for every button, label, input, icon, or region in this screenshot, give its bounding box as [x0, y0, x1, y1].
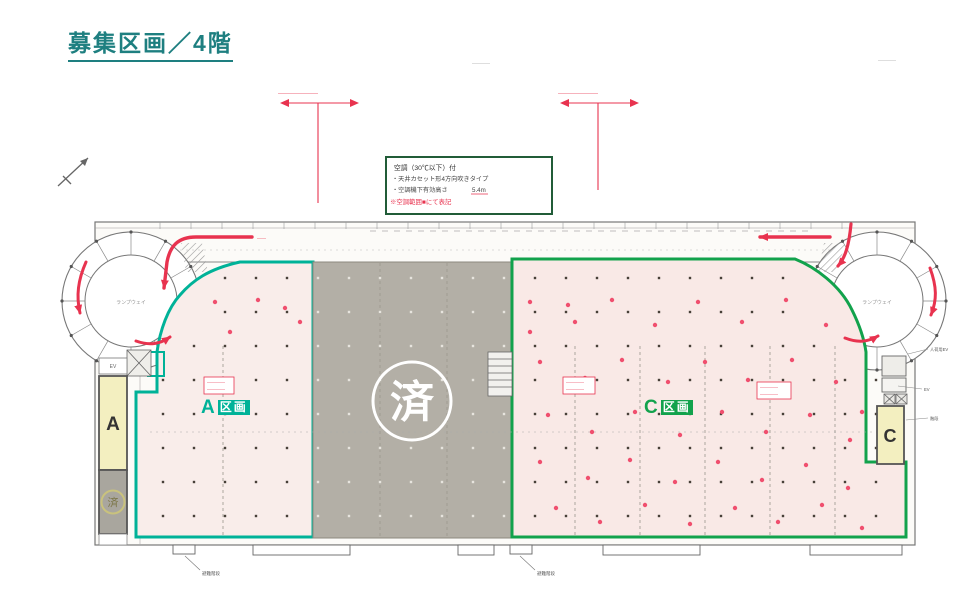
- column-dot: [410, 277, 412, 279]
- column-dot: [348, 311, 350, 313]
- column-dot: [596, 447, 598, 449]
- ac-dot: [653, 323, 657, 327]
- column-dot: [534, 345, 536, 347]
- column-dot: [844, 481, 846, 483]
- column-dot: [658, 379, 660, 381]
- column-dot: [224, 447, 226, 449]
- column-dot: [689, 277, 691, 279]
- ac-dot: [673, 480, 677, 484]
- ramp-rim-dot: [910, 359, 913, 362]
- ramp-rim-dot: [70, 334, 73, 337]
- column-dot: [596, 277, 598, 279]
- section-a-label: A 区画: [201, 398, 250, 417]
- column-dot: [534, 379, 536, 381]
- dock-c-letter: C: [884, 426, 897, 446]
- red-note-c1-line2: ――――: [566, 387, 585, 392]
- column-dot: [720, 447, 722, 449]
- column-dot: [782, 311, 784, 313]
- column-dot: [782, 379, 784, 381]
- column-dot: [379, 311, 381, 313]
- column-dot: [503, 311, 505, 313]
- section-a-label-prefix: A: [201, 398, 215, 417]
- column-dot: [689, 311, 691, 313]
- column-dot: [224, 345, 226, 347]
- column-dot: [565, 345, 567, 347]
- ac-dot: [820, 503, 824, 507]
- ac-dot: [824, 323, 828, 327]
- column-dot: [658, 481, 660, 483]
- column-dot: [751, 379, 753, 381]
- column-dot: [751, 481, 753, 483]
- ac-dot: [764, 430, 768, 434]
- column-dot: [565, 311, 567, 313]
- column-dot: [317, 277, 319, 279]
- ac-dot: [598, 520, 602, 524]
- ac-dot: [860, 410, 864, 414]
- column-dot: [751, 515, 753, 517]
- column-dot: [286, 515, 288, 517]
- ramp-rim-dot: [875, 368, 878, 371]
- ac-dot: [720, 410, 724, 414]
- ac-dot: [746, 378, 750, 382]
- column-dot: [534, 447, 536, 449]
- column-dot: [348, 345, 350, 347]
- column-dot: [162, 413, 164, 415]
- column-dot: [627, 515, 629, 517]
- red-note-a-line1: ――――: [207, 380, 226, 385]
- ac-dot: [283, 306, 287, 310]
- column-dot: [348, 413, 350, 415]
- column-dot: [503, 345, 505, 347]
- ramp-left-label: ランプウェイ: [116, 299, 146, 306]
- ac-dot: [633, 410, 637, 414]
- column-dot: [596, 379, 598, 381]
- ac-dot: [703, 360, 707, 364]
- column-dot: [782, 481, 784, 483]
- column-dot: [472, 379, 474, 381]
- column-dot: [565, 481, 567, 483]
- column-dot: [348, 379, 350, 381]
- column-dot: [317, 447, 319, 449]
- ramp-rim-dot: [935, 265, 938, 268]
- column-dot: [813, 481, 815, 483]
- dock-taken-text: 済: [108, 495, 119, 509]
- red-note-a: ―――― ――――: [204, 377, 234, 394]
- column-dot: [472, 481, 474, 483]
- column-dot: [379, 345, 381, 347]
- column-dot: [472, 413, 474, 415]
- column-dot: [627, 447, 629, 449]
- column-dot: [255, 413, 257, 415]
- column-dot: [193, 345, 195, 347]
- column-dot: [751, 277, 753, 279]
- section-c-label: C 区画: [644, 398, 693, 417]
- page-title: 募集区画／4階: [68, 24, 233, 62]
- column-dot: [844, 413, 846, 415]
- ramp-rim-dot: [164, 240, 167, 243]
- column-dot: [348, 447, 350, 449]
- dimension-note-left: ――――――――: [278, 91, 318, 97]
- column-dot: [782, 413, 784, 415]
- callout-right-2: EV: [924, 387, 930, 392]
- column-dot: [751, 311, 753, 313]
- column-dot: [565, 413, 567, 415]
- red-note-c2: ―――― ――――: [757, 382, 791, 399]
- top-note-center: ――――: [472, 61, 491, 66]
- column-dot: [348, 277, 350, 279]
- column-dot: [286, 345, 288, 347]
- column-dot: [596, 345, 598, 347]
- red-note-c1-line1: ――――: [566, 380, 585, 385]
- ac-dot: [528, 330, 532, 334]
- column-dot: [441, 311, 443, 313]
- column-dot: [627, 345, 629, 347]
- column-dot: [658, 277, 660, 279]
- column-dot: [193, 413, 195, 415]
- column-dot: [844, 379, 846, 381]
- column-dot: [875, 379, 877, 381]
- column-dot: [162, 481, 164, 483]
- ac-dot: [610, 298, 614, 302]
- column-dot: [565, 447, 567, 449]
- north-arrow-icon: [58, 158, 88, 186]
- column-dot: [689, 447, 691, 449]
- column-dot: [627, 481, 629, 483]
- ramp-rim-dot: [129, 230, 132, 233]
- column-dot: [472, 515, 474, 517]
- legend-line3b: 5.4m: [472, 187, 486, 194]
- column-dot: [286, 481, 288, 483]
- column-dot: [782, 515, 784, 517]
- column-dot: [627, 311, 629, 313]
- ac-dot: [554, 506, 558, 510]
- column-dot: [255, 481, 257, 483]
- ac-dot: [678, 433, 682, 437]
- column-dot: [565, 515, 567, 517]
- column-dot: [596, 481, 598, 483]
- column-dot: [503, 277, 505, 279]
- legend-line4: ※空調範囲■にて表記: [390, 197, 452, 206]
- ac-dot: [590, 430, 594, 434]
- column-dot: [441, 481, 443, 483]
- column-dot: [782, 447, 784, 449]
- callout-right-1: 人荷用EV: [930, 346, 948, 353]
- red-note-c1: ―――― ――――: [563, 377, 595, 394]
- ac-dot: [760, 478, 764, 482]
- legend-box: 空調（30℃以下）付 ・天井カセット形4方向吹きタイプ ・空調機下有効高さ 5.…: [386, 157, 552, 214]
- ac-dot: [628, 458, 632, 462]
- column-dot: [627, 379, 629, 381]
- ac-dot: [776, 520, 780, 524]
- ac-dot: [620, 358, 624, 362]
- column-dot: [565, 277, 567, 279]
- column-dot: [689, 481, 691, 483]
- floor-plan-page: ランプウェイ ランプウェイ: [0, 0, 980, 601]
- column-dot: [255, 345, 257, 347]
- legend-line3a: ・空調機下有効高さ: [392, 186, 448, 194]
- column-dot: [534, 311, 536, 313]
- column-dot: [472, 311, 474, 313]
- column-dot: [224, 481, 226, 483]
- column-dot: [503, 481, 505, 483]
- column-dot: [782, 277, 784, 279]
- column-dot: [844, 447, 846, 449]
- column-dot: [813, 515, 815, 517]
- taken-stamp-text: 済: [390, 378, 435, 427]
- column-dot: [720, 379, 722, 381]
- legend-line2: ・天井カセット形4方向吹きタイプ: [392, 175, 489, 183]
- ac-dot: [696, 300, 700, 304]
- column-dot: [162, 515, 164, 517]
- column-dot: [720, 277, 722, 279]
- column-dot: [224, 311, 226, 313]
- callout-right-3: 階段: [930, 415, 939, 422]
- column-dot: [813, 447, 815, 449]
- column-dot: [224, 277, 226, 279]
- column-dot: [472, 345, 474, 347]
- column-dot: [689, 379, 691, 381]
- column-dot: [503, 515, 505, 517]
- ac-dot: [256, 298, 260, 302]
- column-dot: [162, 447, 164, 449]
- column-dot: [751, 413, 753, 415]
- column-dot: [534, 413, 536, 415]
- stairwell: [488, 352, 512, 396]
- column-dot: [286, 447, 288, 449]
- column-dot: [689, 345, 691, 347]
- column-dot: [472, 277, 474, 279]
- section-c-label-suffix: 区画: [661, 400, 693, 415]
- ac-dot: [808, 413, 812, 417]
- ramp-rim-dot: [841, 240, 844, 243]
- column-dot: [193, 515, 195, 517]
- column-dot: [813, 413, 815, 415]
- ramp-rim-dot: [60, 299, 63, 302]
- column-dot: [255, 515, 257, 517]
- ac-dot: [846, 486, 850, 490]
- column-dot: [255, 277, 257, 279]
- column-dot: [379, 481, 381, 483]
- column-dot: [813, 345, 815, 347]
- column-dot: [193, 379, 195, 381]
- column-dot: [286, 277, 288, 279]
- column-dot: [286, 311, 288, 313]
- callout-bottom-left: 避難階段: [202, 570, 220, 577]
- ac-dot: [538, 460, 542, 464]
- ramp-right-label: ランプウェイ: [862, 299, 892, 306]
- column-dot: [441, 277, 443, 279]
- column-dot: [534, 277, 536, 279]
- column-dot: [813, 379, 815, 381]
- section-c-label-prefix: C: [644, 398, 658, 417]
- ac-dot: [213, 300, 217, 304]
- column-dot: [410, 481, 412, 483]
- column-dot: [658, 345, 660, 347]
- column-dot: [317, 345, 319, 347]
- ac-dot: [733, 506, 737, 510]
- column-dot: [286, 379, 288, 381]
- column-dot: [410, 345, 412, 347]
- column-dot: [503, 447, 505, 449]
- ac-dot: [298, 320, 302, 324]
- ac-dot: [804, 463, 808, 467]
- dock-a-letter: A: [106, 414, 120, 435]
- floor-plan-drawing: ランプウェイ ランプウェイ: [0, 0, 980, 601]
- ac-dot: [688, 522, 692, 526]
- column-dot: [875, 481, 877, 483]
- legend-line1: 空調（30℃以下）付: [394, 163, 456, 172]
- column-dot: [317, 413, 319, 415]
- column-dot: [720, 311, 722, 313]
- ramp-rim-dot: [935, 334, 938, 337]
- column-dot: [782, 345, 784, 347]
- ac-dot: [716, 460, 720, 464]
- column-dot: [627, 413, 629, 415]
- ramp-rim-dot: [95, 240, 98, 243]
- ramp-rim-dot: [95, 359, 98, 362]
- column-dot: [255, 447, 257, 449]
- column-dot: [379, 277, 381, 279]
- column-dot: [348, 481, 350, 483]
- dimension-note-right: ――――――――: [558, 91, 598, 97]
- column-dot: [720, 515, 722, 517]
- red-note-a-line2: ――――: [207, 387, 226, 392]
- column-dot: [875, 515, 877, 517]
- column-dot: [317, 311, 319, 313]
- stair-box-left: [127, 350, 151, 376]
- ac-dot: [228, 330, 232, 334]
- ramp-rim-dot: [816, 265, 819, 268]
- callout-bottom-center: 避難階段: [537, 570, 555, 577]
- column-dot: [720, 345, 722, 347]
- ac-dot: [740, 320, 744, 324]
- ramp-rim-dot: [944, 299, 947, 302]
- column-dot: [286, 413, 288, 415]
- column-dot: [317, 481, 319, 483]
- column-dot: [317, 379, 319, 381]
- column-dot: [627, 277, 629, 279]
- column-dot: [162, 379, 164, 381]
- red-note-c2-line2: ――――: [760, 392, 779, 397]
- column-dot: [224, 515, 226, 517]
- ac-dot: [528, 300, 532, 304]
- ac-dot: [566, 303, 570, 307]
- column-dot: [751, 447, 753, 449]
- column-dot: [255, 311, 257, 313]
- column-dot: [844, 515, 846, 517]
- ac-dot: [834, 380, 838, 384]
- ac-dot: [848, 438, 852, 442]
- column-dot: [410, 515, 412, 517]
- column-dot: [534, 481, 536, 483]
- ac-dot: [538, 360, 542, 364]
- column-dot: [596, 311, 598, 313]
- column-dot: [379, 515, 381, 517]
- red-note-c2-line1: ――――: [760, 385, 779, 390]
- column-dot: [751, 345, 753, 347]
- column-dot: [503, 413, 505, 415]
- flow-arrow-note: ――: [257, 236, 267, 241]
- ac-dot: [790, 358, 794, 362]
- column-dot: [596, 413, 598, 415]
- column-dot: [472, 447, 474, 449]
- column-dot: [441, 447, 443, 449]
- ramp-rim-dot: [70, 265, 73, 268]
- column-dot: [596, 515, 598, 517]
- column-dot: [441, 345, 443, 347]
- bottom-callouts: [185, 556, 535, 570]
- column-dot: [379, 447, 381, 449]
- ac-dot: [573, 320, 577, 324]
- ramp-rim-dot: [875, 230, 878, 233]
- ac-dot: [586, 476, 590, 480]
- column-dot: [658, 515, 660, 517]
- ac-dot: [784, 298, 788, 302]
- ramp-rim-dot: [910, 240, 913, 243]
- column-dot: [410, 447, 412, 449]
- dock-left-top-label: EV: [110, 364, 117, 370]
- column-dot: [534, 515, 536, 517]
- column-dot: [348, 515, 350, 517]
- top-note-right: ――――: [878, 58, 897, 63]
- ac-dot: [860, 526, 864, 530]
- dock-left: EV A 済: [99, 358, 127, 545]
- column-dot: [410, 311, 412, 313]
- column-dot: [720, 481, 722, 483]
- column-dot: [658, 447, 660, 449]
- column-dot: [317, 515, 319, 517]
- column-dot: [255, 379, 257, 381]
- bottom-stair-landings: [173, 545, 902, 555]
- ac-dot: [546, 413, 550, 417]
- ac-dot: [643, 503, 647, 507]
- ac-dot: [666, 380, 670, 384]
- section-a-label-suffix: 区画: [218, 400, 250, 415]
- column-dot: [193, 447, 195, 449]
- column-dot: [658, 311, 660, 313]
- column-dot: [689, 515, 691, 517]
- column-dot: [193, 481, 195, 483]
- column-dot: [441, 515, 443, 517]
- section-c-area: [512, 259, 906, 537]
